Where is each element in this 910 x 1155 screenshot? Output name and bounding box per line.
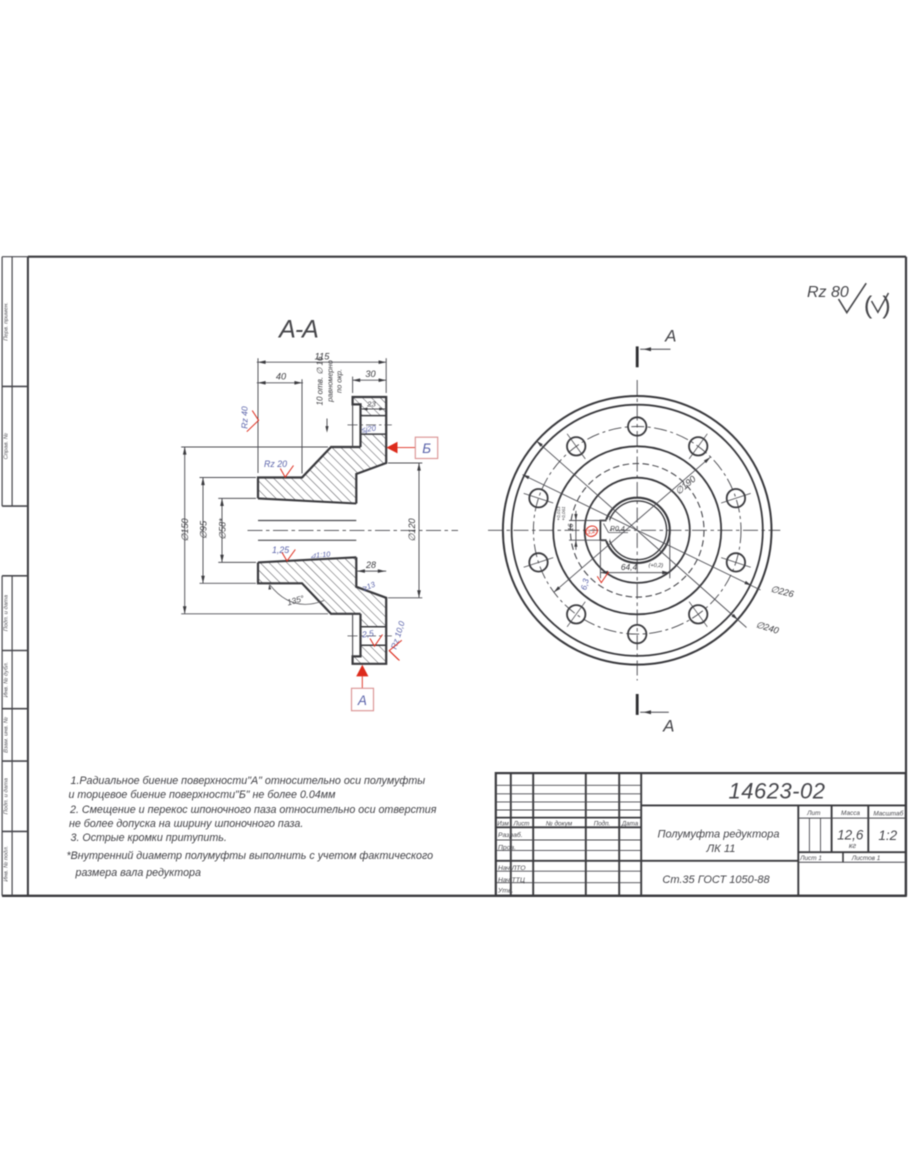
svg-text:⊿1:10: ⊿1:10 — [310, 550, 332, 560]
svg-text:Rz 20: Rz 20 — [264, 459, 287, 469]
svg-text:Б: Б — [422, 441, 431, 456]
svg-text:Справ. №: Справ. № — [4, 433, 10, 459]
svg-text:∅150: ∅150 — [180, 517, 190, 541]
svg-text:Полумуфта редуктора: Полумуфта редуктора — [657, 829, 779, 841]
svg-text:по окр.: по окр. — [335, 369, 344, 393]
svg-text:Взам. инв. №: Взам. инв. № — [4, 717, 10, 753]
svg-text:Дата: Дата — [621, 821, 639, 828]
svg-text:2,5: 2,5 — [360, 628, 374, 640]
svg-text:1,25: 1,25 — [272, 545, 289, 555]
svg-text:40: 40 — [276, 372, 287, 382]
svg-text:Инв. № подл.: Инв. № подл. — [4, 846, 10, 882]
svg-text:равномерно: равномерно — [326, 360, 335, 403]
svg-text:Ст.35 ГОСТ 1050-88: Ст.35 ГОСТ 1050-88 — [662, 874, 770, 886]
svg-text:∅95: ∅95 — [198, 520, 208, 539]
svg-text:Разраб.: Разраб. — [498, 831, 523, 839]
svg-text:2. Смещение и перекос шпоночно: 2. Смещение и перекос шпоночного паза от… — [69, 804, 437, 816]
svg-text:Масса: Масса — [841, 810, 860, 817]
svg-text:Нач.ТТЦ: Нач.ТТЦ — [498, 877, 525, 884]
svg-text:64,4: 64,4 — [621, 562, 638, 572]
svg-text:+0,013: +0,013 — [556, 506, 561, 521]
svg-text:Подп. и дата: Подп. и дата — [4, 777, 10, 814]
svg-text:Инв. № дубл.: Инв. № дубл. — [4, 662, 10, 698]
svg-text:ЛК 11: ЛК 11 — [706, 843, 736, 855]
svg-text:Подп. и дата: Подп. и дата — [4, 594, 10, 631]
svg-text:23: 23 — [366, 400, 376, 409]
svg-text:Rz 80: Rz 80 — [807, 284, 849, 301]
svg-text:Нач.ЛТО: Нач.ЛТО — [498, 865, 526, 872]
svg-text:Лит: Лит — [806, 810, 821, 817]
svg-text:Подп.: Подп. — [594, 821, 610, 828]
svg-text:*Внутренний диаметр полумуфты: *Внутренний диаметр полумуфты выполнить … — [67, 850, 434, 862]
svg-text:(+0,2): (+0,2) — [649, 563, 664, 569]
svg-text:16: 16 — [568, 524, 575, 532]
svg-text:А: А — [357, 693, 367, 708]
svg-text:∅120: ∅120 — [407, 517, 417, 541]
svg-text:кг: кг — [849, 841, 857, 850]
svg-text:+0,061: +0,061 — [561, 506, 566, 521]
svg-text:Изм: Изм — [497, 821, 509, 828]
svg-text:Лист 1: Лист 1 — [799, 855, 822, 862]
svg-text:А-А: А-А — [277, 316, 318, 344]
svg-text:не более допуска на ширину шпо: не более допуска на ширину шпоночного па… — [69, 818, 303, 830]
svg-text:∅58*: ∅58* — [217, 518, 227, 540]
svg-text:Утв.: Утв. — [497, 888, 514, 895]
svg-text:А: А — [664, 327, 676, 346]
svg-text:и торцевое биение поверхности": и торцевое биение поверхности"Б" не боле… — [69, 789, 337, 801]
svg-text:№ докум: № докум — [546, 820, 573, 828]
svg-text:Пров.: Пров. — [498, 844, 516, 851]
svg-text:Масштаб: Масштаб — [873, 809, 903, 817]
svg-text:1.Радиальное биение поверхност: 1.Радиальное биение поверхности"А" относ… — [71, 775, 426, 787]
svg-text:1:2: 1:2 — [878, 828, 897, 843]
svg-text:Перв. примен.: Перв. примен. — [4, 302, 10, 341]
svg-text:3. Острые кромки притупить.: 3. Острые кромки притупить. — [71, 832, 227, 844]
svg-text:14623-02: 14623-02 — [729, 779, 826, 804]
svg-text:): ) — [882, 292, 890, 320]
svg-text:10 отв. ∅ 16: 10 отв. ∅ 16 — [316, 356, 325, 405]
svg-text:Rz 40: Rz 40 — [240, 406, 250, 429]
svg-text:размера вала редуктора: размера вала редуктора — [75, 867, 201, 879]
svg-text:30: 30 — [365, 369, 376, 379]
svg-text:Лист: Лист — [513, 821, 530, 828]
svg-text:А: А — [662, 717, 674, 736]
svg-text:(: ( — [864, 292, 873, 320]
svg-text:R0,4: R0,4 — [610, 526, 625, 533]
svg-text:Листов 1: Листов 1 — [851, 855, 881, 862]
svg-text:28: 28 — [365, 560, 376, 570]
